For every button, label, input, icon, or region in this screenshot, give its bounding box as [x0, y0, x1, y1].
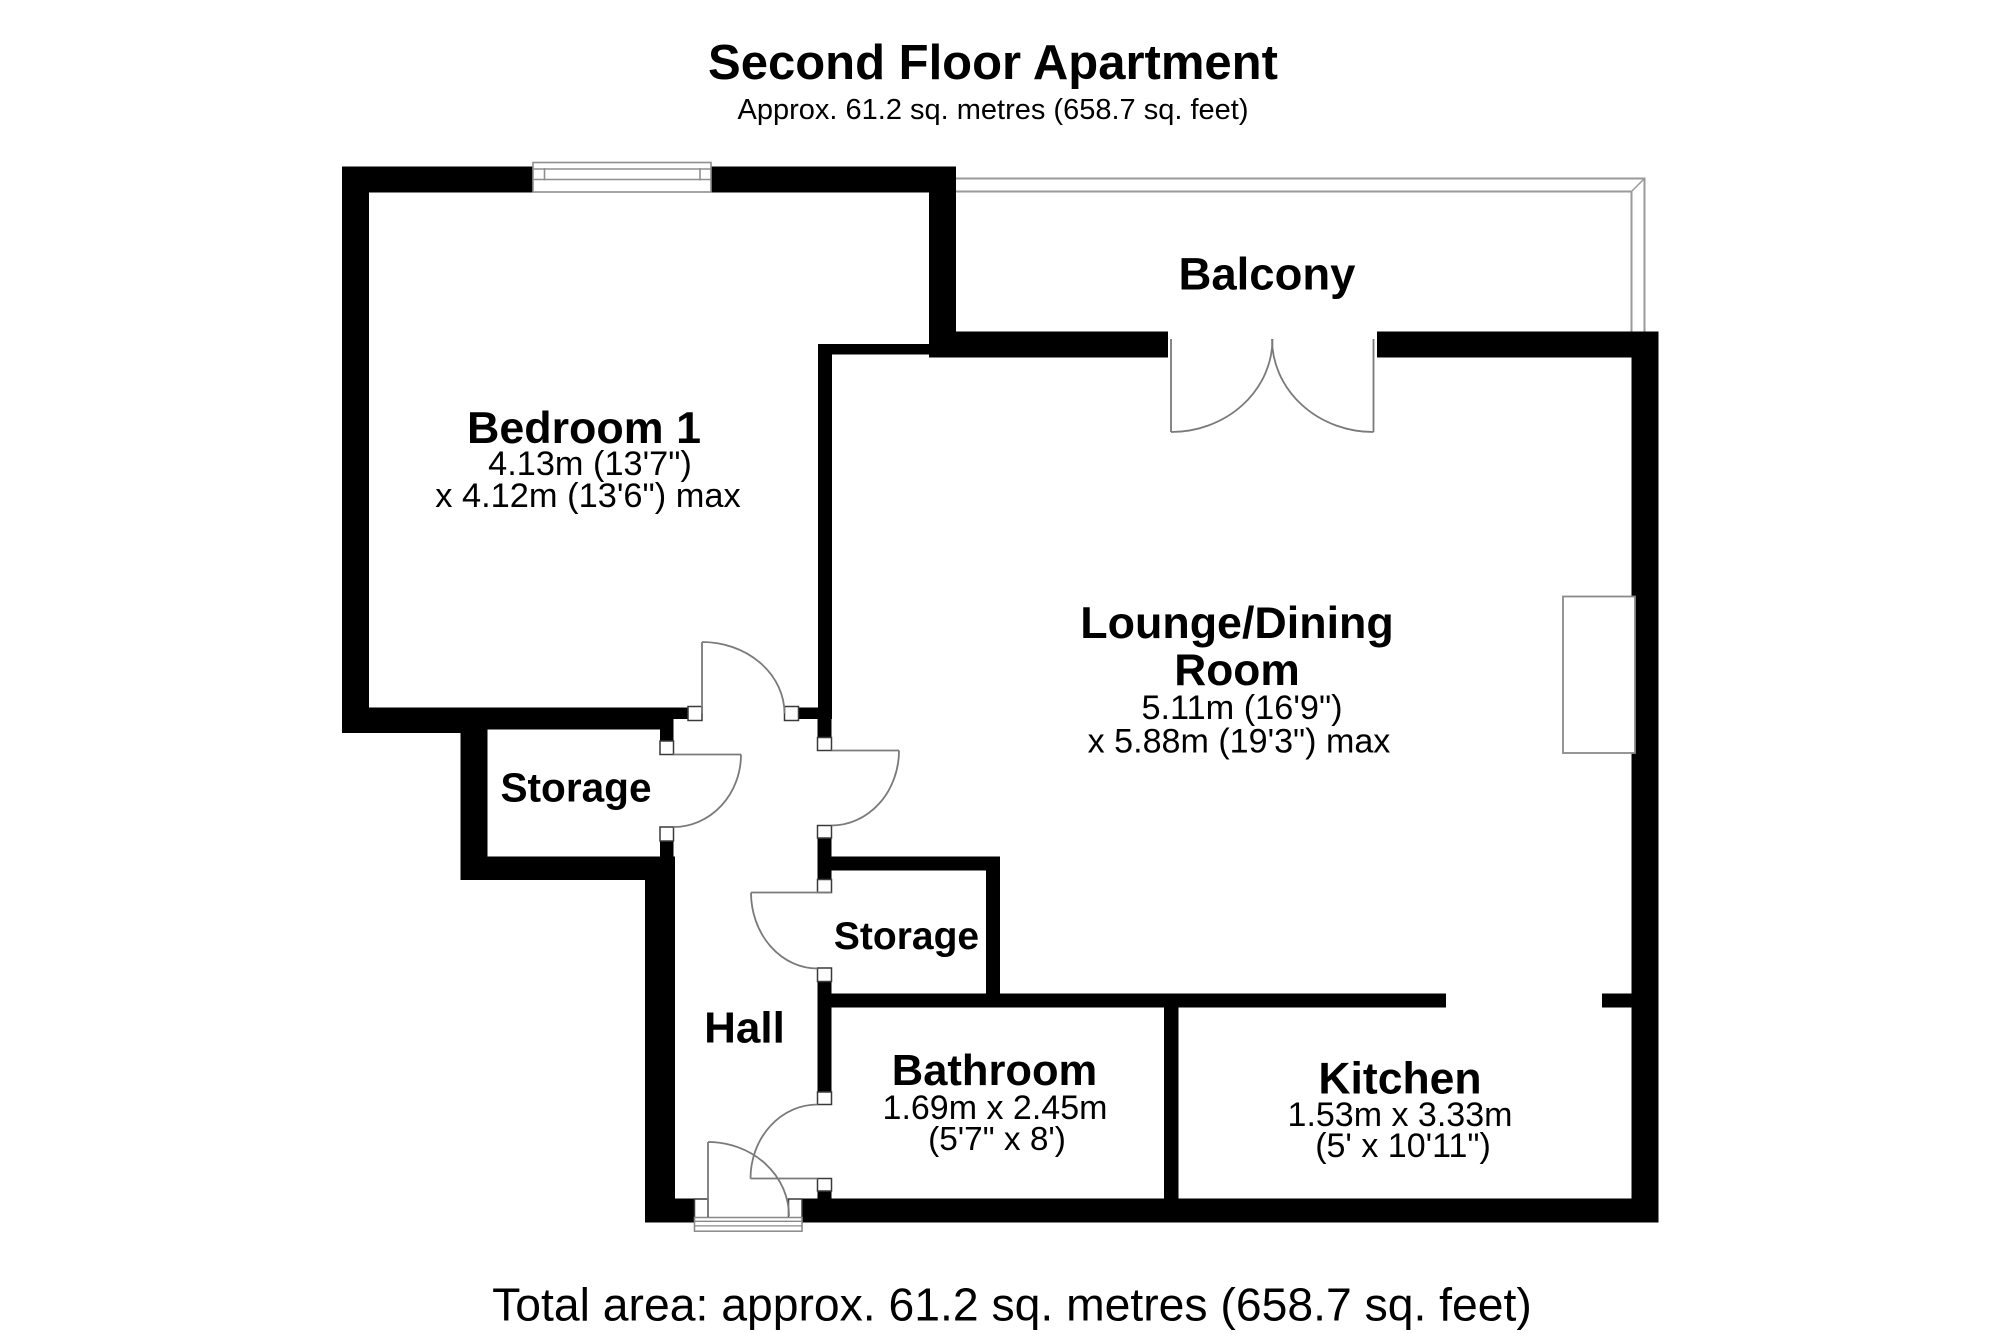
- svg-text:Room: Room: [1174, 646, 1300, 695]
- svg-text:Hall: Hall: [704, 1004, 785, 1053]
- svg-text:(5'7" x 8'): (5'7" x 8'): [928, 1121, 1066, 1158]
- svg-text:x 5.88m (19'3") max: x 5.88m (19'3") max: [1088, 723, 1391, 761]
- svg-text:x 4.12m (13'6") max: x 4.12m (13'6") max: [435, 477, 740, 515]
- svg-text:(5' x 10'11"): (5' x 10'11"): [1315, 1127, 1491, 1165]
- svg-text:Approx. 61.2 sq. metres (658.7: Approx. 61.2 sq. metres (658.7 sq. feet): [738, 94, 1249, 126]
- svg-text:Second Floor Apartment: Second Floor Apartment: [708, 36, 1278, 90]
- svg-text:Lounge/Dining: Lounge/Dining: [1080, 598, 1394, 648]
- svg-text:Bathroom: Bathroom: [892, 1047, 1097, 1095]
- svg-text:Storage: Storage: [500, 765, 651, 811]
- svg-text:5.11m (16'9"): 5.11m (16'9"): [1141, 689, 1342, 727]
- svg-text:Storage: Storage: [834, 915, 979, 958]
- svg-text:Total area: approx. 61.2 sq. m: Total area: approx. 61.2 sq. metres (658…: [492, 1279, 1532, 1331]
- svg-text:Balcony: Balcony: [1178, 249, 1356, 300]
